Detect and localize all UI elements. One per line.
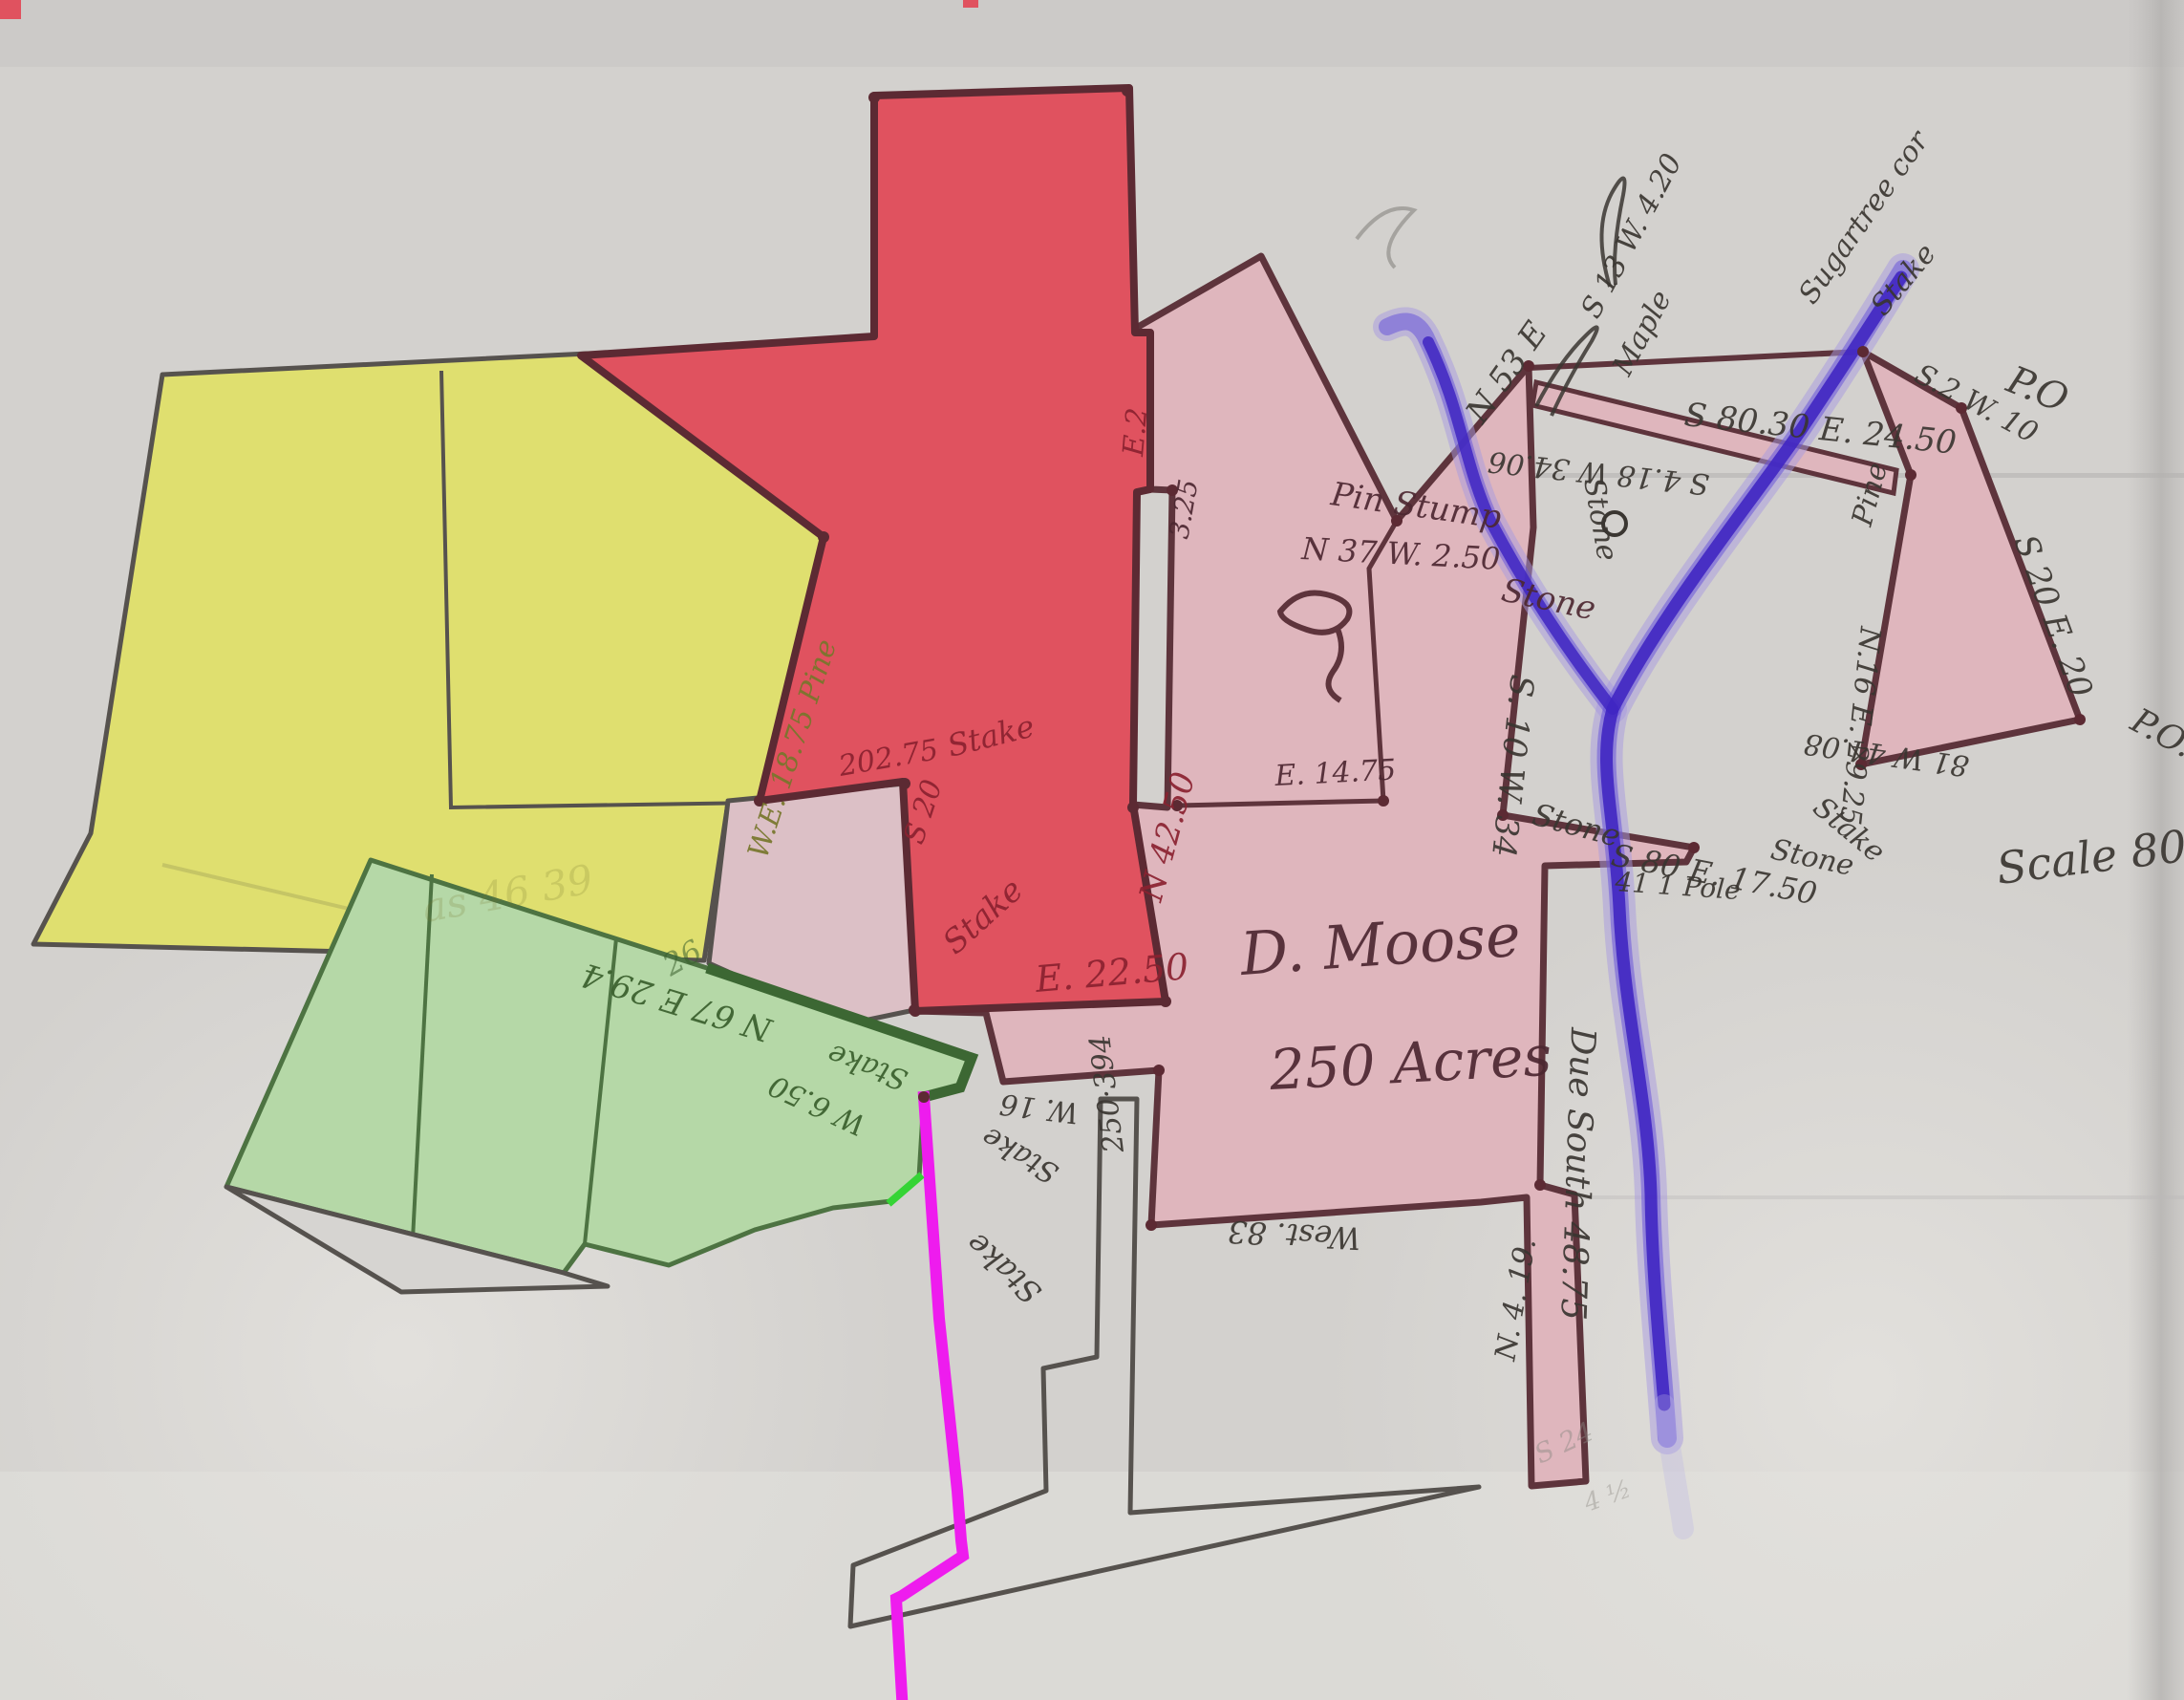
map-annotation: E.2 [1117, 406, 1154, 458]
survey-corner-dot [1160, 996, 1171, 1007]
survey-corner-dot [899, 778, 910, 789]
paper-top-band [0, 0, 2184, 67]
survey-corner-dot [909, 1004, 920, 1016]
survey-corner-dot [1534, 1179, 1546, 1191]
survey-corner-dot [1122, 85, 1133, 97]
survey-corner-dot [1857, 346, 1869, 357]
red-top-speck [963, 0, 978, 8]
survey-corner-dot [1146, 1219, 1157, 1231]
survey-map: D. Moose250 AcresPin StumpN 37 W. 2.50St… [0, 0, 2184, 1700]
survey-corner-dot [2074, 714, 2086, 725]
survey-corner-dot [1905, 469, 1916, 481]
survey-corner-dot [868, 92, 880, 103]
survey-corner-dot [918, 1091, 930, 1103]
red-corner-speck [0, 0, 21, 19]
map-annotation: West. 83 [1227, 1214, 1361, 1257]
survey-map-canvas: D. Moose250 AcresPin StumpN 37 W. 2.50St… [0, 0, 2184, 1700]
survey-corner-dot [1153, 1065, 1165, 1076]
map-annotation: E. 14.75 [1274, 753, 1398, 793]
survey-corner-dot [1378, 795, 1389, 807]
survey-corner-dot [1127, 802, 1139, 813]
survey-corner-dot [818, 531, 829, 543]
